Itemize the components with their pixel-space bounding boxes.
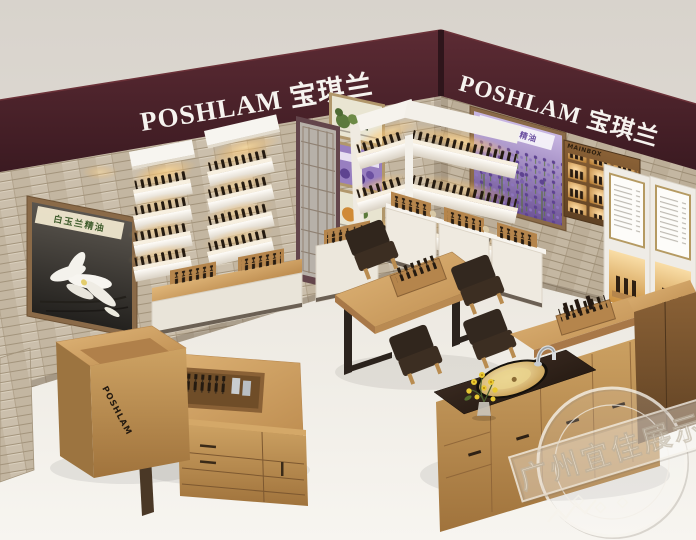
reception-desk: POSHLAM <box>0 326 190 482</box>
drawer-cabinet <box>178 418 308 506</box>
store-render: POSHLAM 宝琪兰 POSHLAM 宝琪兰 白玉兰精油 <box>0 0 696 540</box>
scene-svg: POSHLAM 宝琪兰 POSHLAM 宝琪兰 白玉兰精油 <box>0 0 696 540</box>
magnolia-poster: 白玉兰精油 <box>27 196 137 338</box>
fascia-corner-edge <box>438 30 444 96</box>
stone-pillar <box>0 348 34 482</box>
